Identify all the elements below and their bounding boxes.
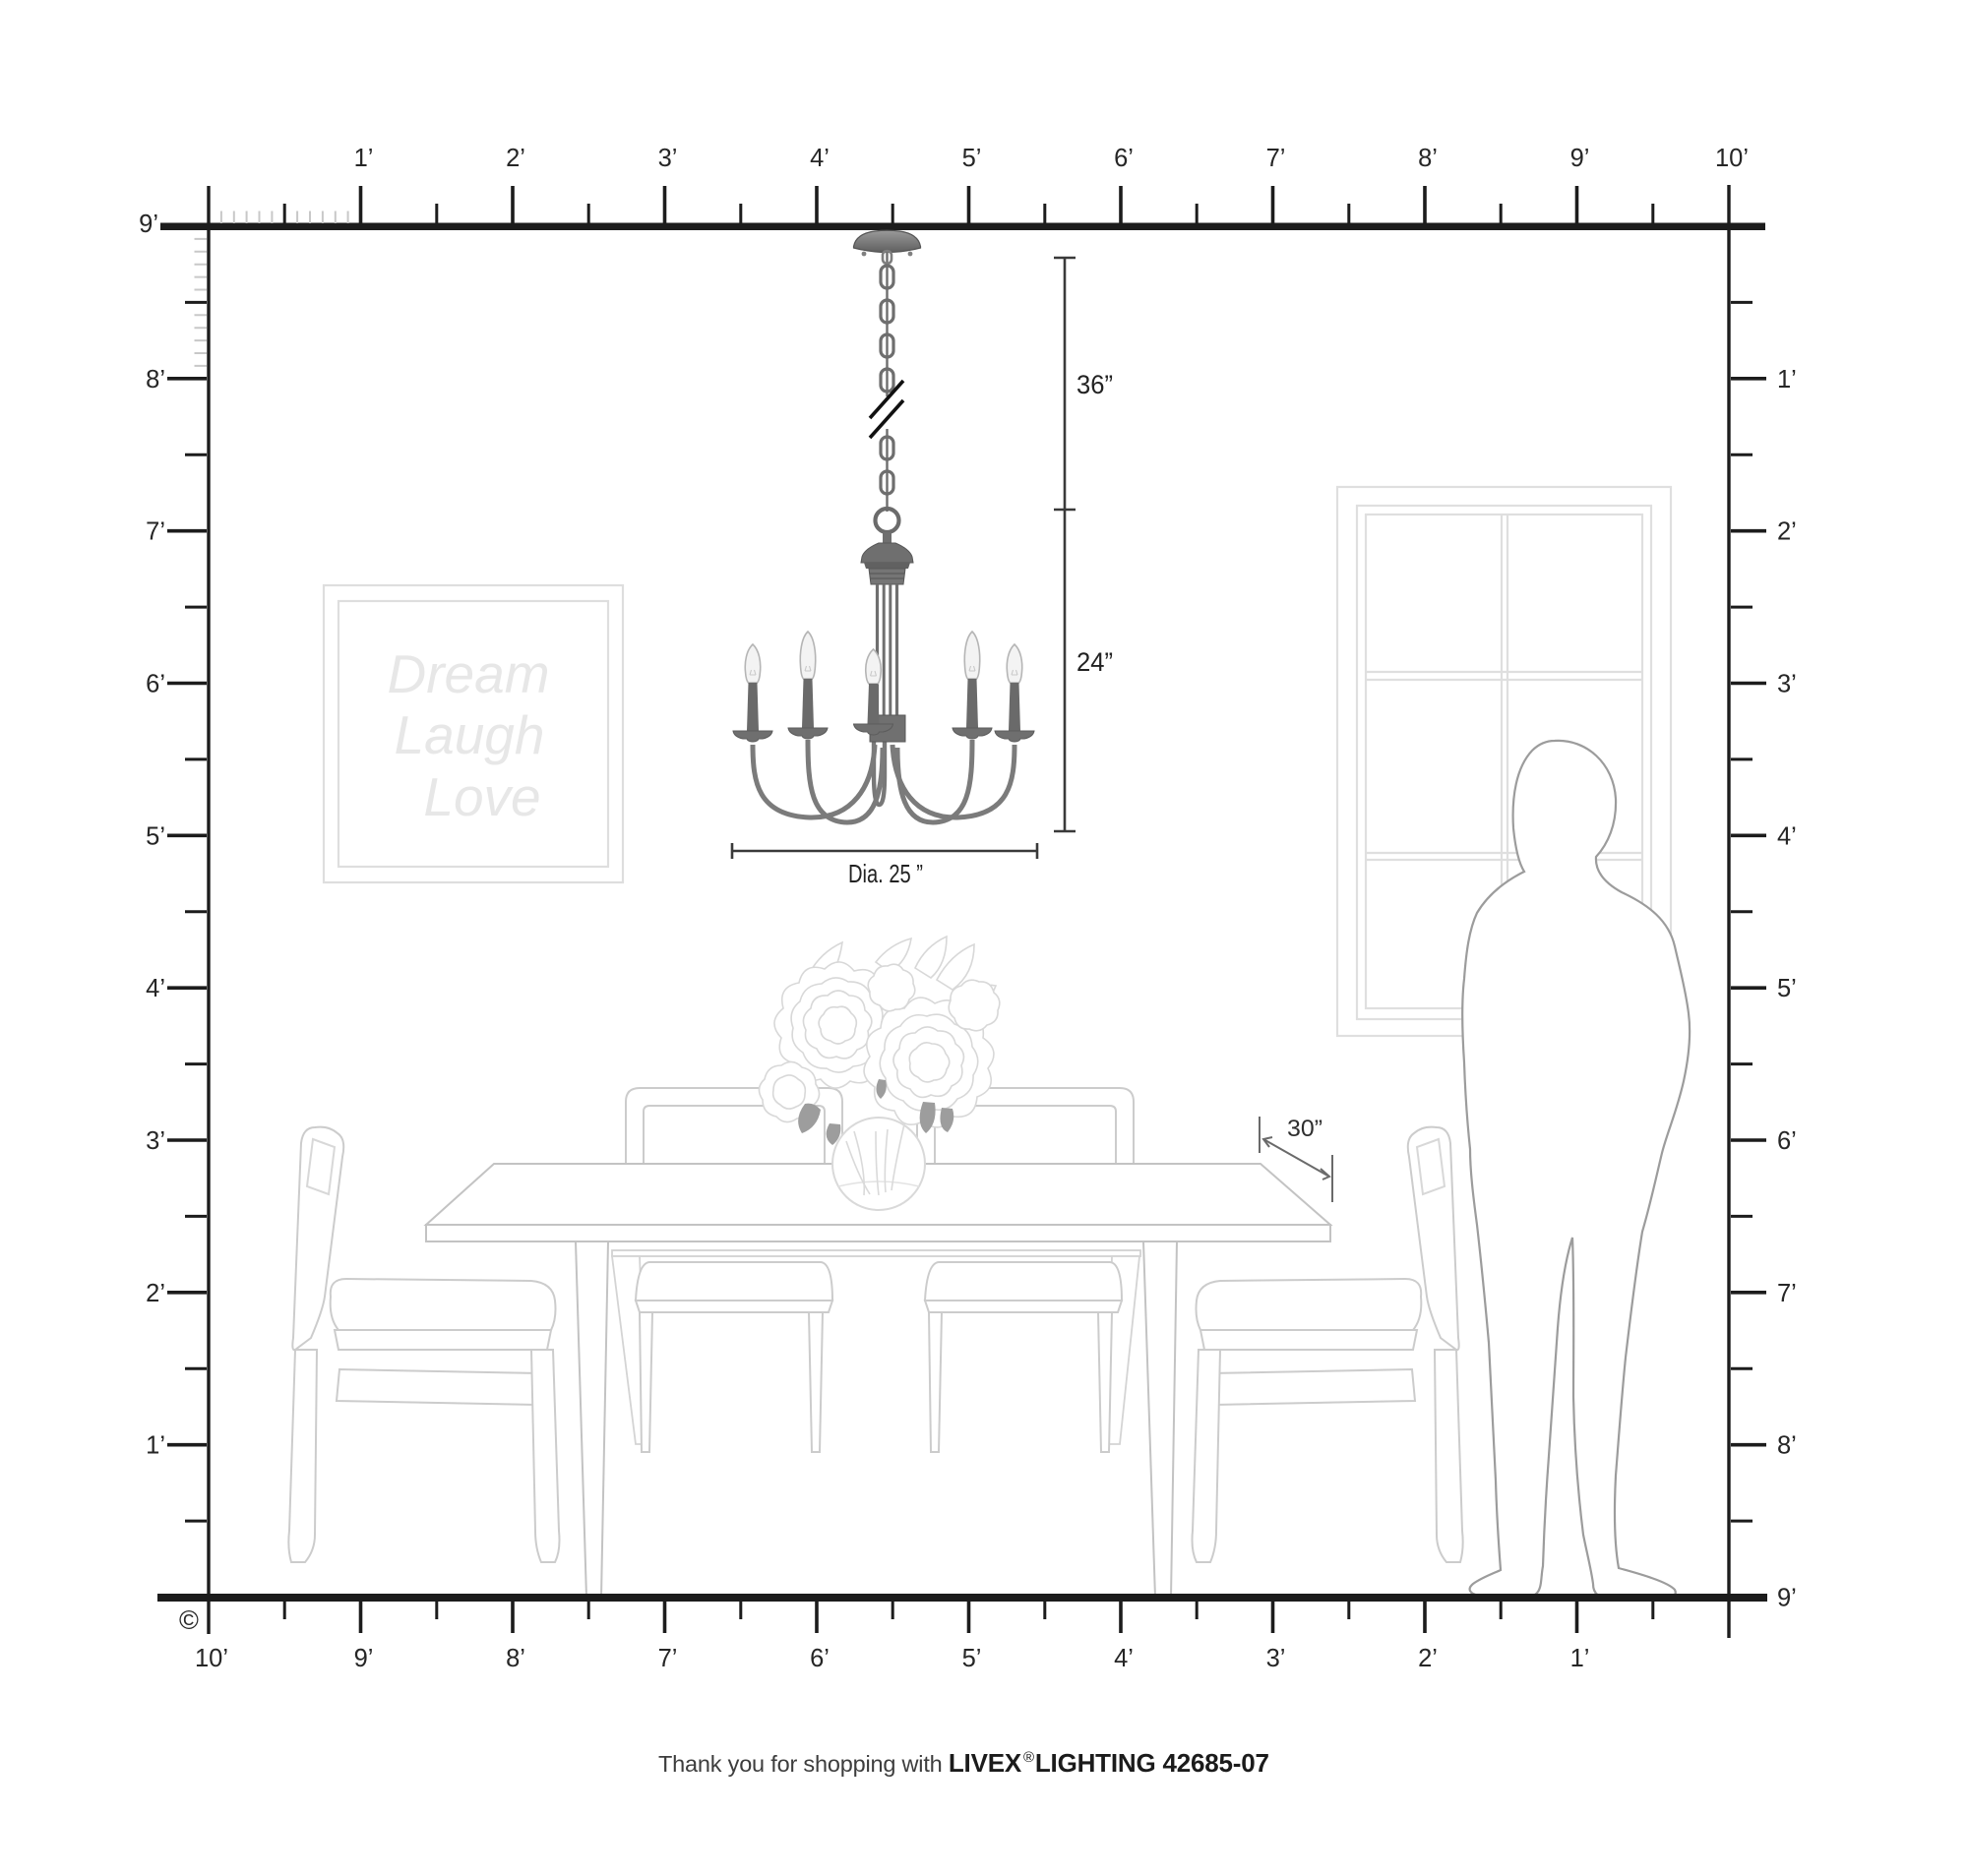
svg-text:10’: 10’: [1715, 145, 1749, 172]
svg-text:9’: 9’: [1777, 1585, 1797, 1612]
svg-text:Love: Love: [423, 766, 540, 827]
svg-text:1’: 1’: [146, 1432, 165, 1460]
svg-text:Laugh: Laugh: [395, 704, 545, 765]
svg-text:5’: 5’: [962, 145, 982, 172]
svg-text:5’: 5’: [962, 1645, 982, 1672]
svg-text:2’: 2’: [506, 145, 525, 172]
svg-text:30”: 30”: [1287, 1116, 1322, 1142]
svg-text:4’: 4’: [810, 145, 830, 172]
svg-text:1’: 1’: [354, 145, 374, 172]
svg-text:9’: 9’: [1570, 145, 1590, 172]
svg-text:2’: 2’: [1777, 518, 1797, 546]
svg-text:6’: 6’: [1777, 1127, 1797, 1155]
svg-text:7’: 7’: [658, 1645, 678, 1672]
svg-text:7’: 7’: [146, 518, 165, 546]
svg-text:9’: 9’: [354, 1645, 374, 1672]
svg-text:Dream: Dream: [387, 643, 549, 704]
svg-text:5’: 5’: [1777, 975, 1797, 1002]
svg-text:4’: 4’: [1114, 1645, 1134, 1672]
svg-text:6’: 6’: [1114, 145, 1134, 172]
svg-text:6’: 6’: [146, 671, 165, 698]
svg-text:3’: 3’: [146, 1127, 165, 1155]
svg-text:3’: 3’: [658, 145, 678, 172]
svg-text:9’: 9’: [139, 211, 158, 238]
svg-text:7’: 7’: [1266, 145, 1286, 172]
svg-text:7’: 7’: [1777, 1280, 1797, 1307]
svg-text:8’: 8’: [146, 366, 165, 393]
svg-text:8’: 8’: [1777, 1432, 1797, 1460]
svg-text:3’: 3’: [1266, 1645, 1286, 1672]
svg-text:Dia. 25 ”: Dia. 25 ”: [848, 859, 923, 888]
svg-text:2’: 2’: [146, 1280, 165, 1307]
svg-text:2’: 2’: [1418, 1645, 1438, 1672]
svg-text:24”: 24”: [1076, 647, 1113, 677]
svg-text:8’: 8’: [1418, 145, 1438, 172]
svg-text:6’: 6’: [810, 1645, 830, 1672]
svg-text:10’: 10’: [195, 1645, 228, 1672]
svg-text:1’: 1’: [1777, 366, 1797, 393]
svg-text:8’: 8’: [506, 1645, 525, 1672]
svg-text:4’: 4’: [146, 975, 165, 1002]
svg-text:5’: 5’: [146, 822, 165, 850]
svg-text:Thank you for shopping with LI: Thank you for shopping with LIVEX®LIGHTI…: [658, 1748, 1269, 1778]
svg-text:1’: 1’: [1570, 1645, 1590, 1672]
svg-text:4’: 4’: [1777, 822, 1797, 850]
svg-text:©: ©: [179, 1605, 199, 1635]
svg-text:3’: 3’: [1777, 671, 1797, 698]
svg-text:36”: 36”: [1076, 370, 1113, 399]
